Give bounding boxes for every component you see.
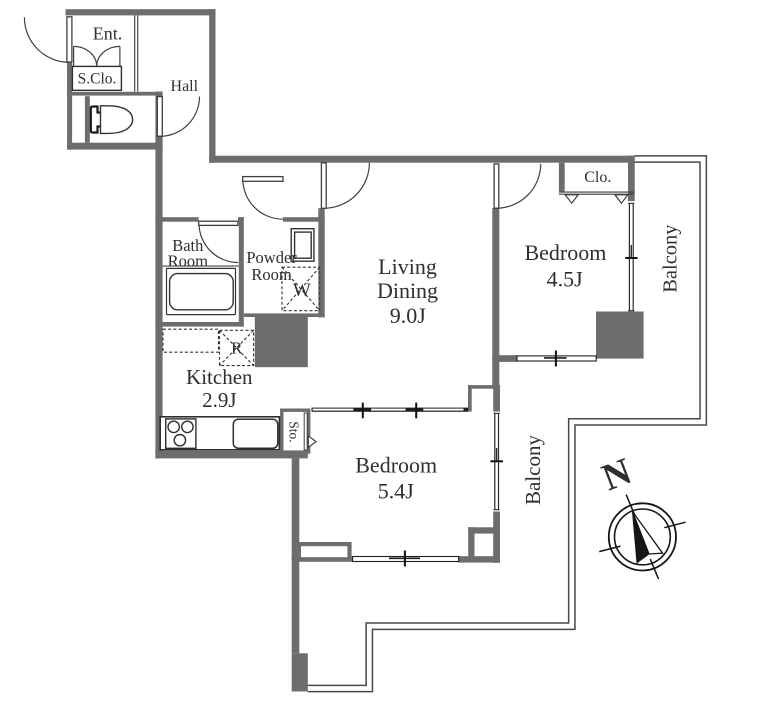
svg-text:Sto.: Sto.: [286, 421, 301, 442]
svg-text:Dining: Dining: [377, 278, 438, 303]
svg-text:W: W: [293, 280, 311, 301]
svg-text:Hall: Hall: [171, 78, 199, 95]
svg-text:Balcony: Balcony: [660, 224, 682, 293]
svg-text:Kitchen: Kitchen: [186, 365, 253, 389]
svg-text:5.4J: 5.4J: [378, 479, 415, 504]
svg-text:Bedroom: Bedroom: [355, 452, 437, 477]
svg-text:Room: Room: [168, 252, 209, 271]
svg-text:Room: Room: [251, 265, 292, 284]
svg-text:4.5J: 4.5J: [547, 266, 584, 291]
svg-text:Clo.: Clo.: [584, 169, 611, 186]
svg-text:Bedroom: Bedroom: [524, 240, 606, 265]
svg-text:R: R: [231, 338, 243, 357]
svg-text:Ent.: Ent.: [93, 24, 123, 44]
svg-text:2.9J: 2.9J: [202, 388, 236, 412]
svg-text:S.Clo.: S.Clo.: [78, 71, 117, 88]
svg-text:Living: Living: [378, 254, 437, 279]
svg-text:9.0J: 9.0J: [390, 303, 427, 328]
svg-text:Balcony: Balcony: [521, 435, 545, 505]
